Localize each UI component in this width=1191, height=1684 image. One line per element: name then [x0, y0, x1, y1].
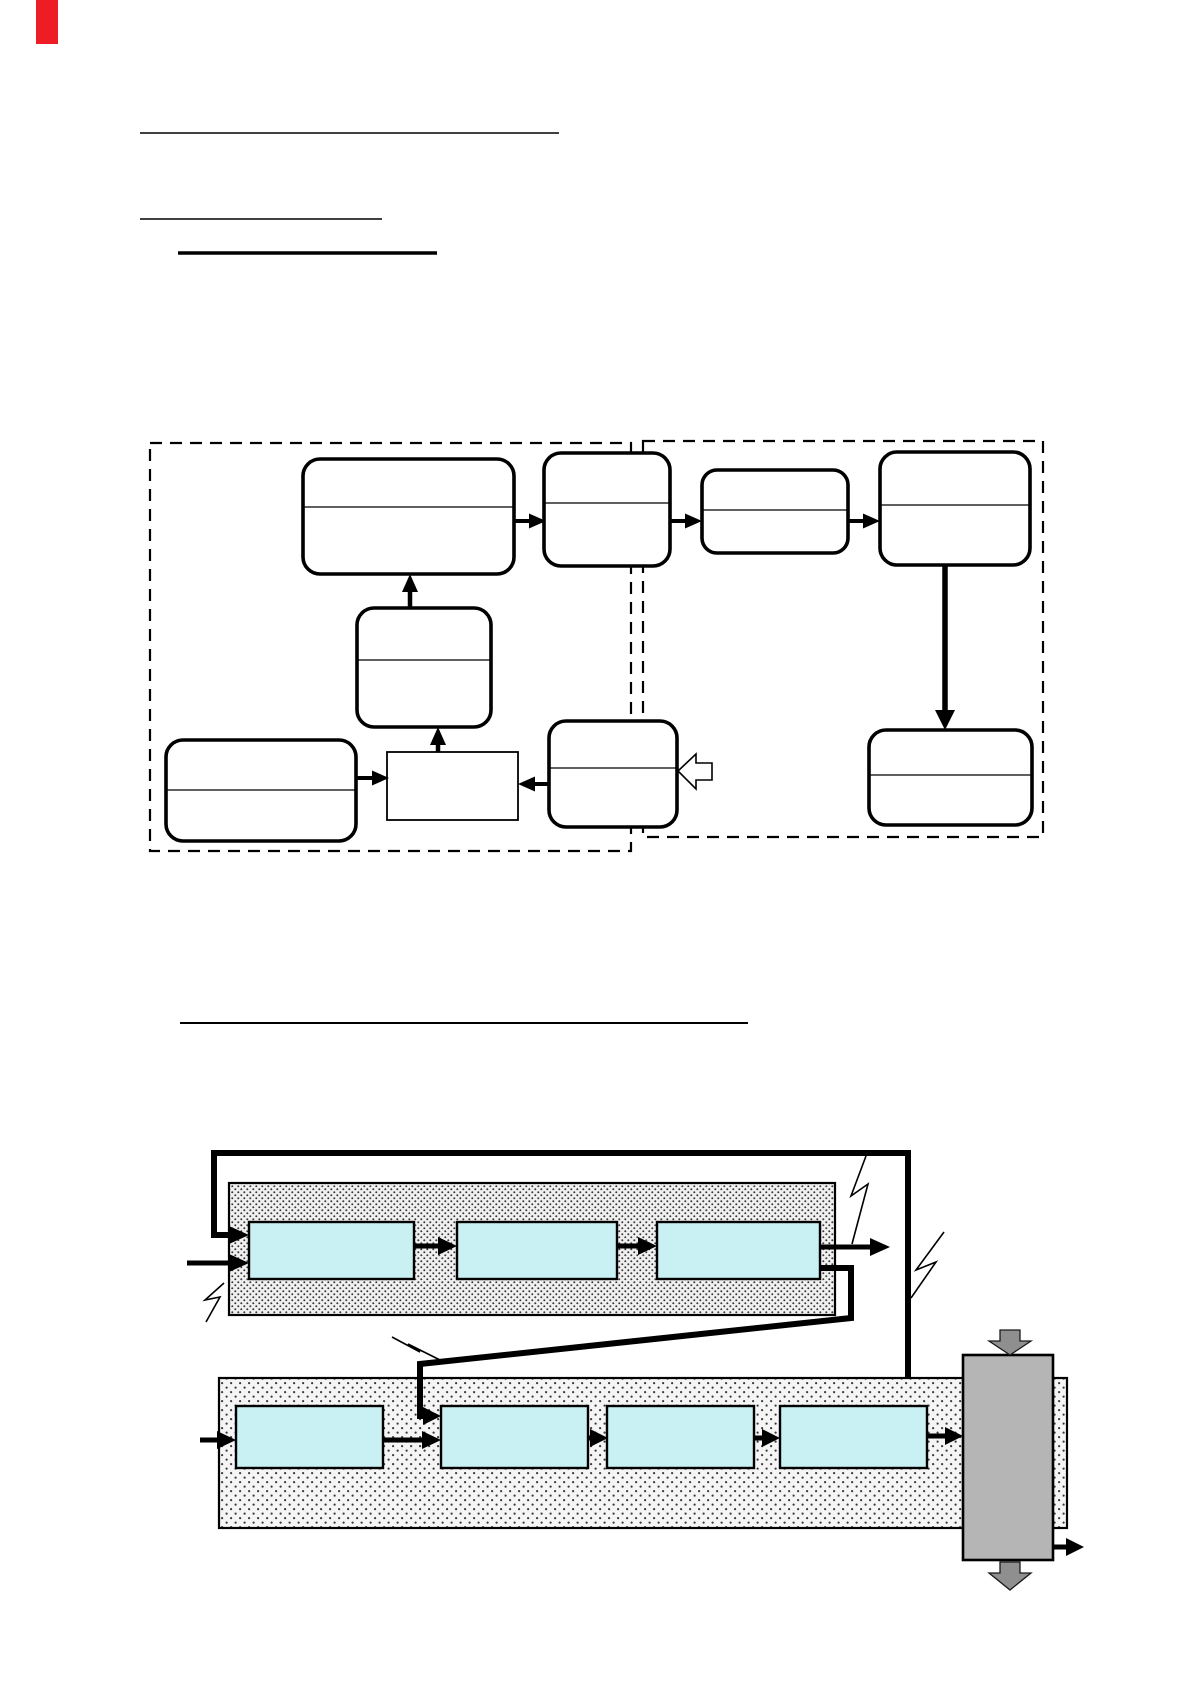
lightning-bolt-crossfeed	[392, 1337, 440, 1360]
lightning-bolt-right	[911, 1232, 944, 1298]
arrow-rightsmall-to-topright	[848, 514, 880, 529]
arrow-bottomleft-to-plainbox	[356, 771, 389, 786]
document-page	[0, 0, 1191, 1684]
gray-slab	[963, 1355, 1053, 1560]
lower-band-block-1	[236, 1406, 383, 1468]
upper-band-block-3	[657, 1222, 820, 1279]
red-corner-marker	[36, 0, 58, 44]
gray-down-arrow-top	[989, 1330, 1031, 1355]
state-box-top-right	[880, 452, 1030, 565]
state-box-right-small	[702, 470, 848, 553]
upper-band-block-1	[249, 1222, 414, 1279]
arrow-topright-down-to-bottomright	[935, 565, 955, 730]
lower-band-block-2	[441, 1406, 588, 1468]
state-box-bottom-right	[869, 730, 1032, 825]
arrow-topleft-to-straddle	[514, 514, 546, 529]
slab-output-arrow	[1053, 1538, 1084, 1556]
lightning-bolt-upper-right	[851, 1156, 868, 1244]
state-box-bottom-left	[166, 740, 356, 841]
state-box-top-left	[303, 459, 514, 574]
flowchart-diagram	[150, 441, 1043, 851]
arrow-straddlebottom-to-plainbox	[518, 777, 549, 792]
state-box-middle-left	[357, 608, 491, 727]
state-box-straddle-bottom	[549, 721, 677, 827]
lower-band-block-3	[607, 1406, 754, 1468]
plain-process-box	[387, 752, 518, 820]
state-box-straddle-top	[544, 453, 670, 566]
arrow-middleleft-up-to-topleft	[402, 574, 418, 608]
page-canvas	[0, 0, 1191, 1684]
upper-band-block-2	[457, 1222, 617, 1279]
gray-down-arrow-bottom	[989, 1562, 1031, 1590]
arrow-straddle-to-rightsmall	[670, 514, 702, 529]
lower-band-block-4	[780, 1406, 927, 1468]
pipeline-diagram	[187, 1153, 1084, 1590]
hollow-left-arrow	[678, 754, 712, 789]
arrow-plainbox-up-to-middleleft	[430, 727, 446, 752]
lightning-bolt-left	[205, 1283, 224, 1322]
